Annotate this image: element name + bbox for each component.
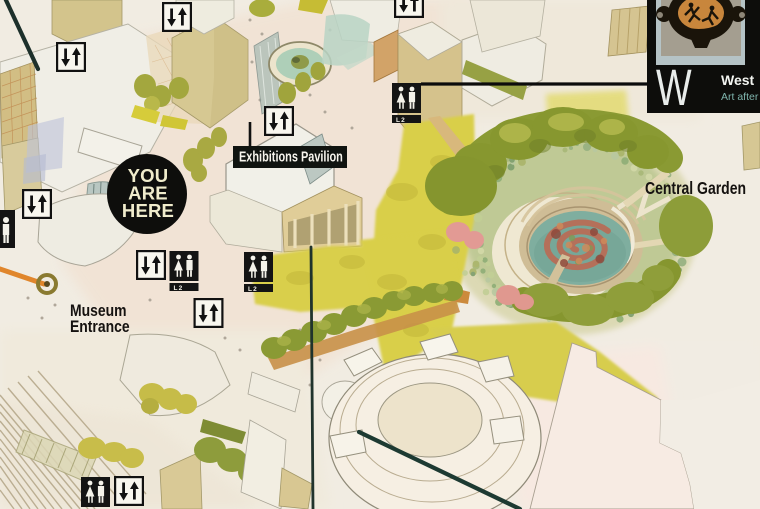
svg-text:Central Garden: Central Garden — [645, 180, 746, 199]
svg-text:Entrance: Entrance — [70, 318, 130, 337]
svg-text:Art after: Art after — [721, 91, 759, 103]
svg-text:West: West — [721, 72, 755, 88]
svg-text:W: W — [656, 58, 692, 116]
svg-text:Exhibitions Pavilion: Exhibitions Pavilion — [239, 148, 343, 165]
svg-text:HERE: HERE — [122, 200, 174, 221]
